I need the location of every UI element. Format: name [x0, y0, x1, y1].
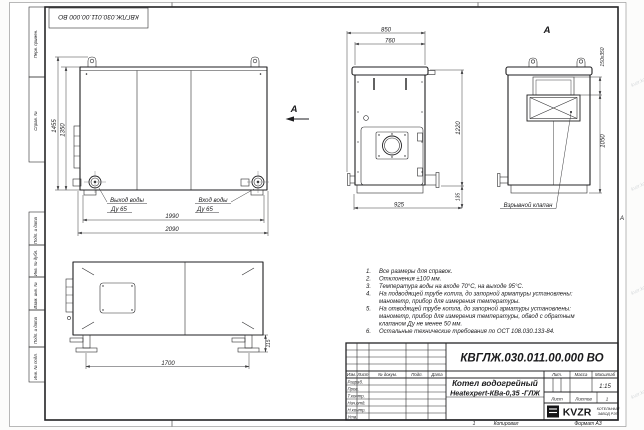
svg-text:kvzr.kz: kvzr.kz: [630, 76, 644, 88]
dim-1700: 1700: [161, 361, 175, 367]
margin-label: Инв. № дубл.: [33, 250, 38, 276]
product-name-line1: Котел водогрейный: [452, 378, 538, 388]
dim-925: 925: [394, 203, 405, 209]
tb-mass-label: Масса: [575, 372, 588, 377]
note-number: 1.: [366, 269, 371, 275]
dim-2090: 2090: [164, 227, 179, 233]
top-stamp-number: КВГЛЖ.030.011.00.000 ВО: [58, 13, 139, 20]
view-arrow-letter: А: [290, 104, 298, 115]
margin-label: Подп. и дата: [33, 216, 38, 244]
margin-label: Взам. инв. №: [33, 282, 38, 309]
note-number: 4.: [366, 292, 371, 298]
tb-row-razrab: Разраб.: [348, 380, 364, 385]
dim-850: 850: [381, 28, 392, 34]
dim-135: 135: [456, 193, 462, 202]
note-line: клапаном Ду не менее 50 мм.: [379, 322, 462, 328]
margin-label: Перв. примен.: [33, 30, 38, 59]
dim-1990: 1990: [165, 214, 179, 220]
zone-number: 1: [473, 421, 476, 427]
zone-letter: А: [619, 216, 624, 222]
margin-label: Справ. №: [33, 111, 38, 131]
product-name-line2: Heatexpert-КВа-0,35 -ГЛЖ: [450, 389, 540, 398]
svg-text:kvzr.kz: kvzr.kz: [630, 180, 644, 192]
tb-sheet-label: Лист: [550, 397, 563, 402]
note-number: 2.: [365, 277, 371, 283]
note-line: Остальные технические требования по ОСТ …: [379, 329, 555, 335]
dim-1220: 1220: [456, 121, 462, 135]
format-label: Формат А3: [574, 421, 602, 427]
dim-1050: 1050: [601, 134, 607, 148]
tb-col-podp: Подп.: [411, 372, 422, 377]
factory-name-line1: КОТЕЛЬНЫЙ: [597, 407, 620, 411]
note-number: 3.: [366, 284, 371, 290]
tb-row-nachotd: Нач.отд.: [348, 401, 366, 406]
dim-150x350: 150х350: [600, 47, 606, 66]
note-number: 5.: [366, 307, 371, 313]
tb-col-list: Лист: [356, 372, 368, 377]
note-line: Все размеры для справок.: [379, 269, 453, 275]
engineering-drawing: kvzr.kzkvzr.kzkvzr.kzkvzr.kzkvzr.kzkvzr.…: [0, 0, 644, 430]
explosion-valve-label: Взрывной клапан: [504, 202, 553, 209]
factory-name-line2: ЗАВОД РЭП: [598, 412, 619, 416]
tb-col-docnum: № докум.: [378, 372, 397, 377]
note-line: Температура воды на входе 70°С, на выход…: [379, 284, 523, 290]
scale-value: 1:15: [599, 384, 611, 390]
tb-row-prov: Пров.: [348, 387, 359, 392]
outlet-dn-label: Ду 65: [110, 207, 127, 213]
tb-row-utv: Утв.: [348, 415, 358, 420]
document-number: КВГЛЖ.030.011.00.000 ВО: [460, 353, 603, 365]
note-number: 6.: [366, 329, 371, 335]
note-line: Отклонения ±100 мм.: [379, 277, 441, 283]
tb-scale-label: Масштаб: [595, 372, 616, 377]
tb-row-nkontr: Н.контр.: [348, 408, 366, 413]
note-line: На отводящей трубе котла, до запорной ар…: [379, 306, 571, 313]
copied-label: Копировал: [494, 421, 519, 427]
note-line: манометр, прибор для измерения температу…: [379, 299, 520, 305]
note-line: манометр, прибор для измерения температу…: [379, 314, 575, 320]
svg-text:kvzr.kz: kvzr.kz: [630, 284, 644, 296]
drawing-sheet: kvzr.kzkvzr.kzkvzr.kzkvzr.kzkvzr.kzkvzr.…: [0, 0, 644, 430]
tb-sheets-label: Листов: [574, 397, 592, 402]
margin-label: Инв. № подл.: [33, 353, 38, 380]
dim-115: 115: [266, 339, 272, 347]
view-a-label: А: [543, 25, 551, 36]
inlet-dn-label: Ду 65: [196, 207, 213, 213]
tb-col-data: Дата: [430, 372, 443, 377]
note-line: На подводящей трубе котла, до запорной а…: [379, 291, 573, 298]
margin-label: Подп. и дата: [33, 316, 38, 344]
logo-text: KVZR: [563, 407, 592, 419]
tb-lit-label: Лит.: [551, 372, 562, 377]
dim-1350: 1350: [60, 123, 66, 137]
dim-760: 760: [385, 39, 396, 45]
dim-1455: 1455: [52, 119, 58, 133]
svg-text:kvzr.kz: kvzr.kz: [630, 388, 644, 400]
tb-col-izm: Изм.: [347, 372, 356, 377]
outlet-label: Выход воды: [110, 198, 144, 204]
tb-row-tkontr: Т.контр.: [348, 394, 365, 399]
inlet-label: Вход воды: [198, 198, 228, 204]
